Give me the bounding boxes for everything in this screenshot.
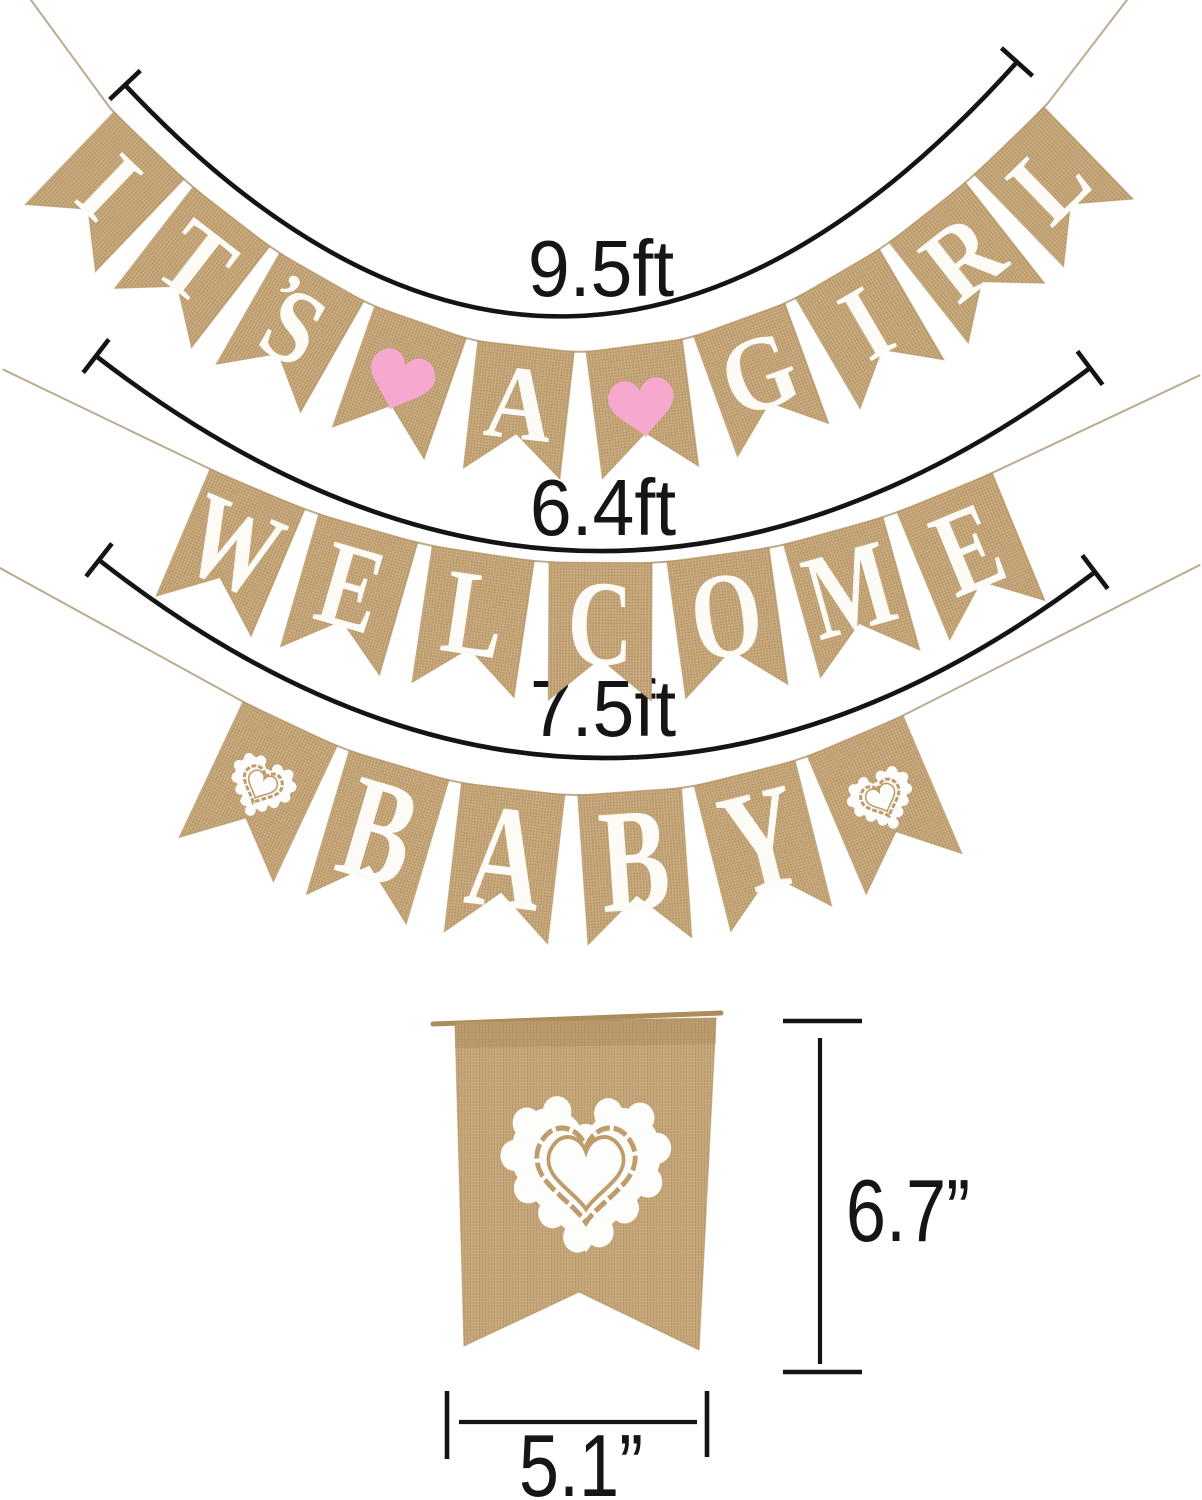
svg-text:5.1”: 5.1” xyxy=(519,1417,643,1500)
svg-text:C: C xyxy=(567,556,633,692)
svg-text:A: A xyxy=(480,341,560,466)
svg-text:B: B xyxy=(594,776,674,945)
svg-text:6.7”: 6.7” xyxy=(846,1162,970,1260)
svg-text:9.5ft: 9.5ft xyxy=(528,225,674,314)
